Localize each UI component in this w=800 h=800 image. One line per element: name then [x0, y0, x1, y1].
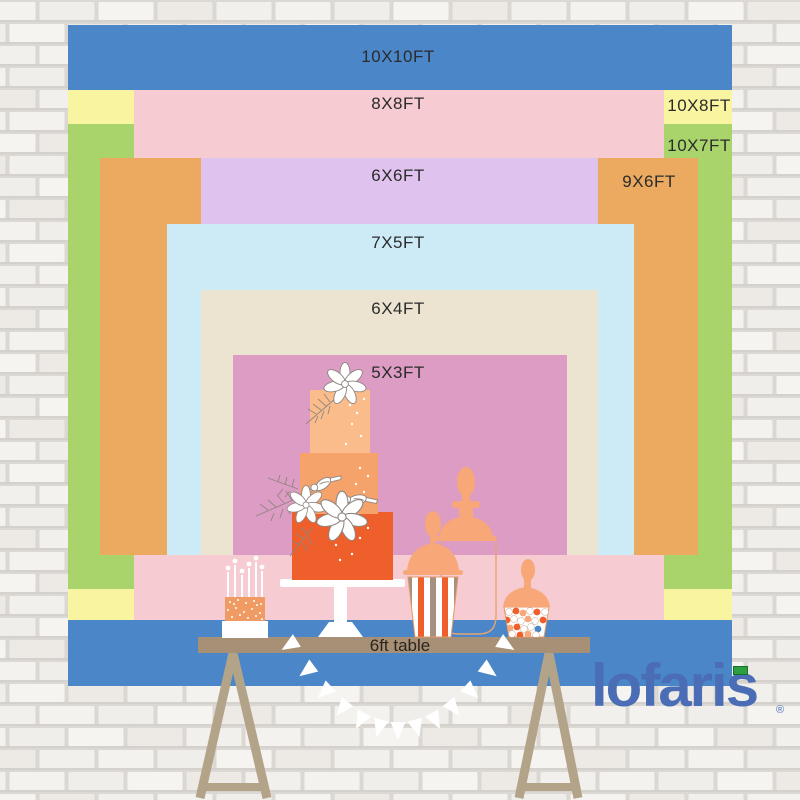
- bunting-triangle: [369, 718, 388, 739]
- tiered-cake: [256, 363, 405, 638]
- bunting-triangle: [331, 697, 354, 720]
- bunting-triangle: [478, 659, 501, 682]
- table: [198, 637, 590, 798]
- bunting-triangle: [407, 718, 426, 739]
- registered-trademark-symbol: ®: [776, 704, 784, 716]
- table-legs: [200, 653, 578, 798]
- table-size-label: 6ft table: [330, 636, 470, 656]
- bunting-triangle: [295, 659, 318, 682]
- bunting-triangle: [391, 722, 406, 740]
- bunting-triangle: [460, 680, 483, 703]
- lofaris-logo: lofaris ®: [591, 658, 757, 722]
- bunting-triangle: [349, 709, 371, 732]
- logo-flag-icon: [733, 666, 748, 675]
- backdrop-size-chart-image: 10X10FT10X8FT10X7FT8X8FT9X6FT6X6FT7X5FT6…: [0, 0, 800, 800]
- bunting-triangle: [425, 709, 447, 732]
- bunting-triangle: [312, 680, 335, 703]
- candy-jar: [503, 559, 550, 638]
- bunting-triangle: [443, 697, 466, 720]
- logo-text: lofaris: [591, 652, 757, 719]
- mini-cake: [222, 556, 268, 638]
